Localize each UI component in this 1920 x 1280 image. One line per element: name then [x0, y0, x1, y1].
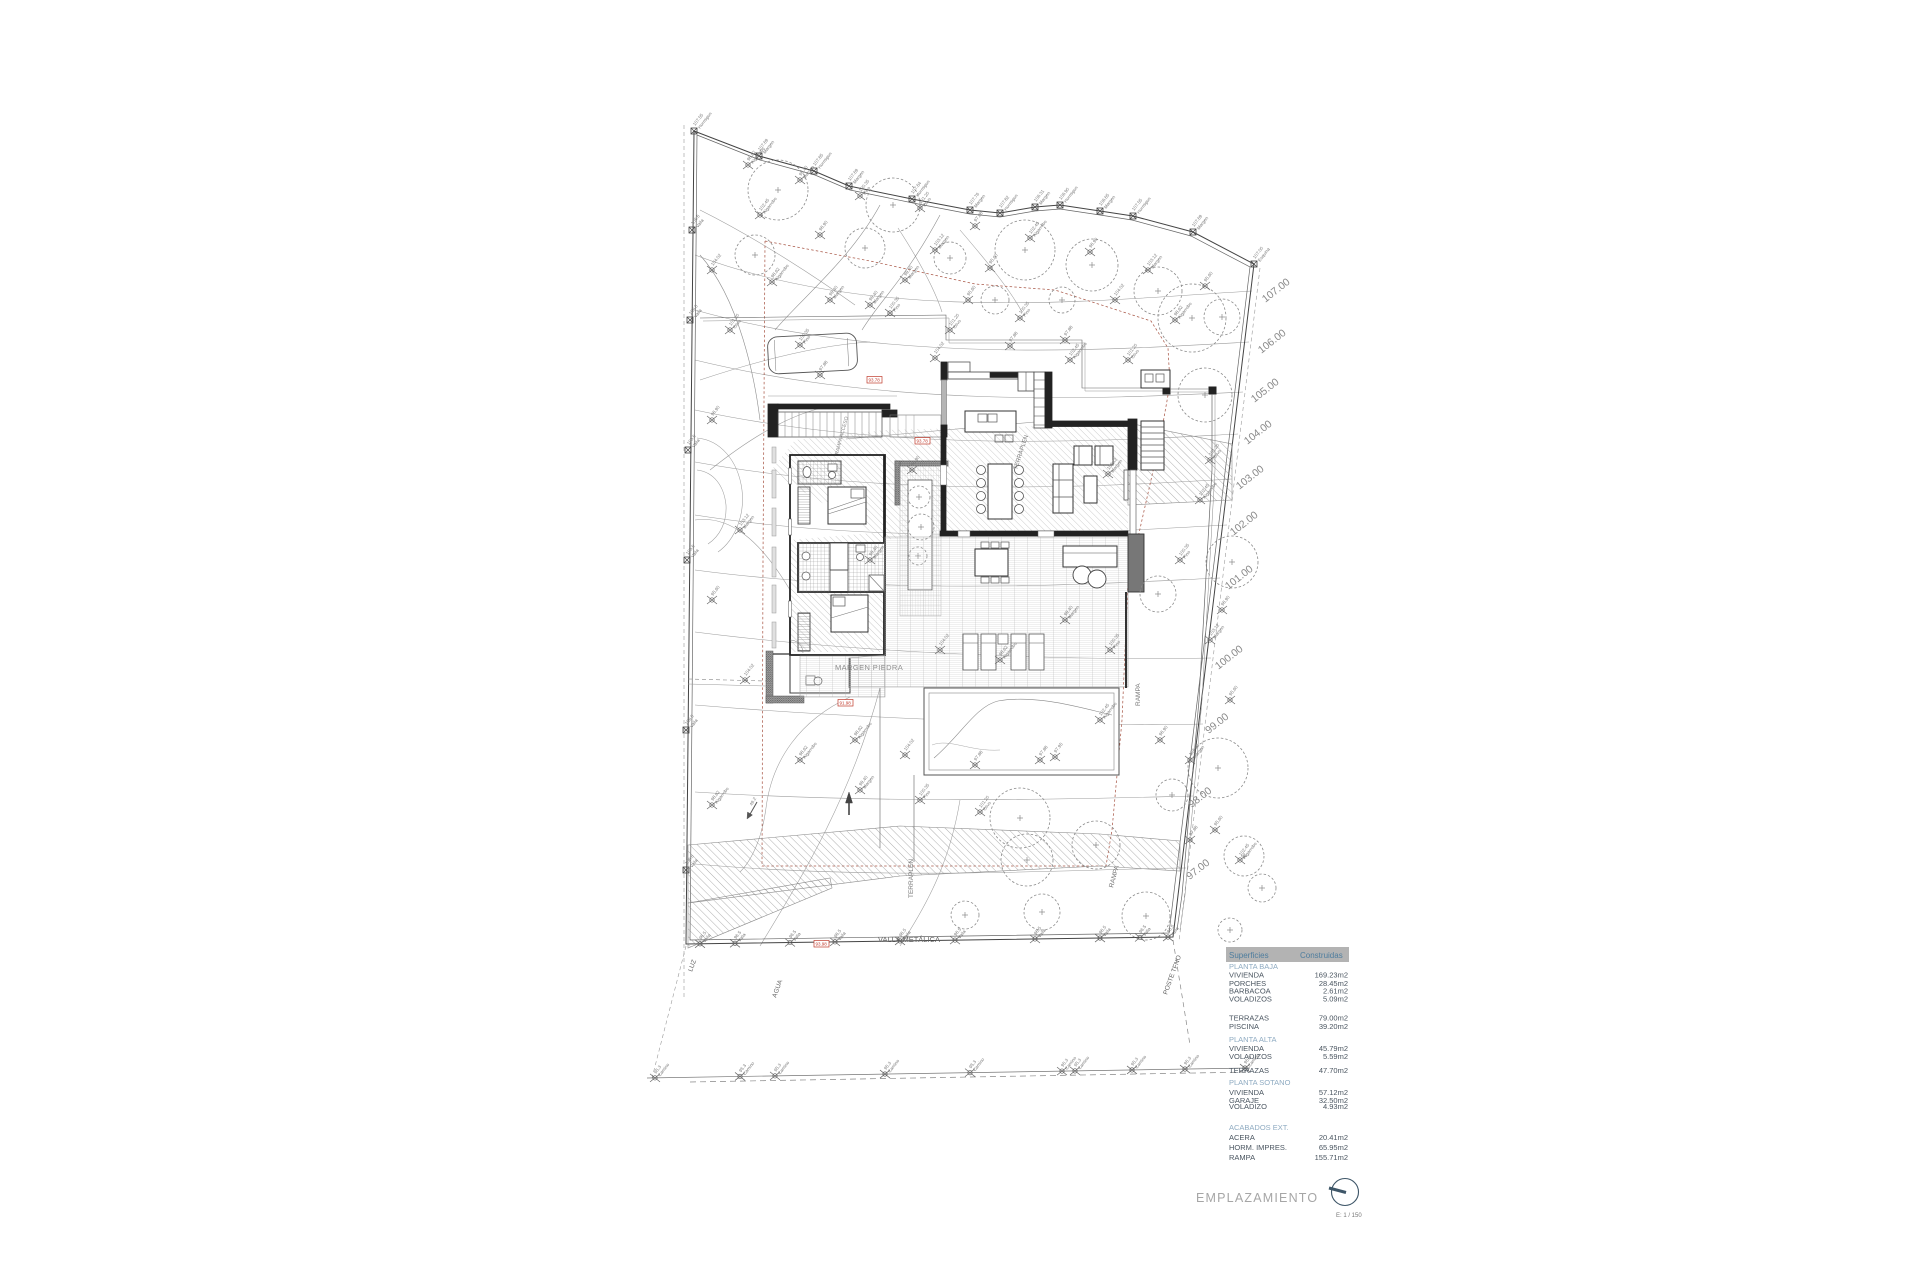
svg-text:PLANTA ALTA: PLANTA ALTA: [1229, 1035, 1277, 1044]
svg-text:HORM. IMPRES.: HORM. IMPRES.: [1229, 1143, 1287, 1152]
svg-text:E: 1 / 150: E: 1 / 150: [1336, 1213, 1362, 1219]
svg-text:91.98: 91.98: [840, 701, 852, 706]
svg-text:155.71m2: 155.71m2: [1315, 1153, 1348, 1162]
svg-text:VOLADIZOS: VOLADIZOS: [1229, 995, 1272, 1004]
svg-text:PLANTA SOTANO: PLANTA SOTANO: [1229, 1078, 1291, 1087]
svg-text:93.98: 93.98: [816, 942, 828, 947]
svg-text:PISCINA: PISCINA: [1229, 1022, 1259, 1031]
svg-text:VOLADIZOS: VOLADIZOS: [1229, 1052, 1272, 1061]
svg-text:TERRAZAS: TERRAZAS: [1229, 1066, 1269, 1075]
svg-text:RAMPA: RAMPA: [1229, 1153, 1255, 1162]
svg-text:VOLADIZO: VOLADIZO: [1229, 1102, 1267, 1111]
svg-text:ACABADOS EXT.: ACABADOS EXT.: [1229, 1123, 1289, 1132]
svg-text:5.59m2: 5.59m2: [1323, 1052, 1348, 1061]
svg-text:Superficies: Superficies: [1229, 951, 1269, 960]
svg-text:47.70m2: 47.70m2: [1319, 1066, 1348, 1075]
svg-text:65.95m2: 65.95m2: [1319, 1143, 1348, 1152]
svg-text:5.09m2: 5.09m2: [1323, 995, 1348, 1004]
svg-text:Construidas: Construidas: [1300, 951, 1343, 960]
svg-text:4.93m2: 4.93m2: [1323, 1102, 1348, 1111]
svg-text:TERRAPLEN: TERRAPLEN: [908, 859, 915, 898]
svg-text:RAMPA: RAMPA: [1135, 683, 1142, 706]
svg-text:93.78: 93.78: [917, 439, 929, 444]
svg-text:93.78: 93.78: [869, 378, 881, 383]
svg-text:39.20m2: 39.20m2: [1319, 1022, 1348, 1031]
svg-text:ACERA: ACERA: [1229, 1133, 1255, 1142]
svg-text:20.41m2: 20.41m2: [1319, 1133, 1348, 1142]
svg-text:EMPLAZAMIENTO: EMPLAZAMIENTO: [1196, 1191, 1318, 1205]
